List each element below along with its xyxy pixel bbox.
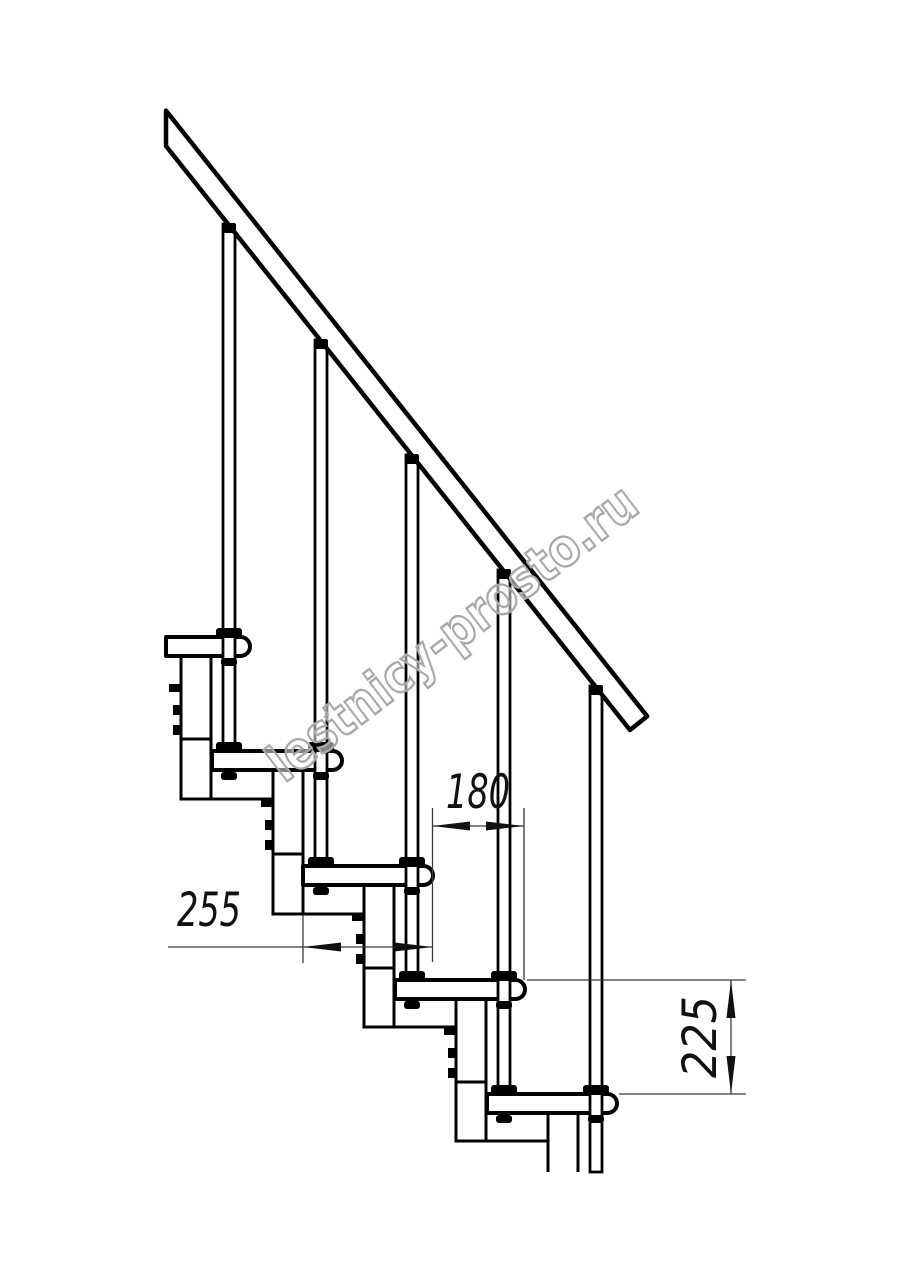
baluster (498, 570, 510, 1094)
support-column (273, 770, 303, 914)
baluster-foot (399, 971, 425, 981)
baluster-nut (404, 1001, 420, 1009)
rail-connector (589, 685, 603, 695)
rail-connector (222, 223, 236, 233)
baluster-foot (308, 857, 334, 867)
baluster-foot (399, 857, 425, 867)
arrowhead-left (303, 943, 341, 952)
baluster-foot (491, 971, 517, 981)
baluster-nut (588, 1115, 604, 1123)
baluster-nut (221, 658, 237, 666)
support-column (181, 656, 211, 799)
dimension-label-tread-depth: 255 (177, 883, 241, 938)
arrowhead-left (433, 822, 471, 831)
baluster-foot (216, 742, 242, 752)
baluster (315, 340, 327, 866)
tread (166, 637, 250, 656)
baluster (590, 686, 602, 1172)
rail-connector (314, 339, 328, 349)
support-column (456, 999, 486, 1141)
baluster-nut (496, 1115, 512, 1123)
rail-connector (405, 454, 419, 464)
staircase-drawing-page: 180 255 225 lestnicy-prosto.ru (0, 0, 914, 1280)
baluster-foot (216, 628, 242, 638)
baluster-foot (583, 1085, 609, 1095)
baluster-nut (221, 772, 237, 780)
staircase-drawing-svg: 180 255 225 lestnicy-prosto.ru (0, 0, 914, 1280)
dimension-label-step-rise: 225 (673, 996, 728, 1078)
baluster-nut (496, 1001, 512, 1009)
dimension-label-step-run: 180 (446, 765, 510, 820)
baluster-foot (491, 1085, 517, 1095)
baluster-nut (404, 887, 420, 895)
baluster (223, 224, 235, 751)
baluster-nut (313, 887, 329, 895)
support-column (364, 885, 394, 1027)
baluster (406, 455, 418, 980)
